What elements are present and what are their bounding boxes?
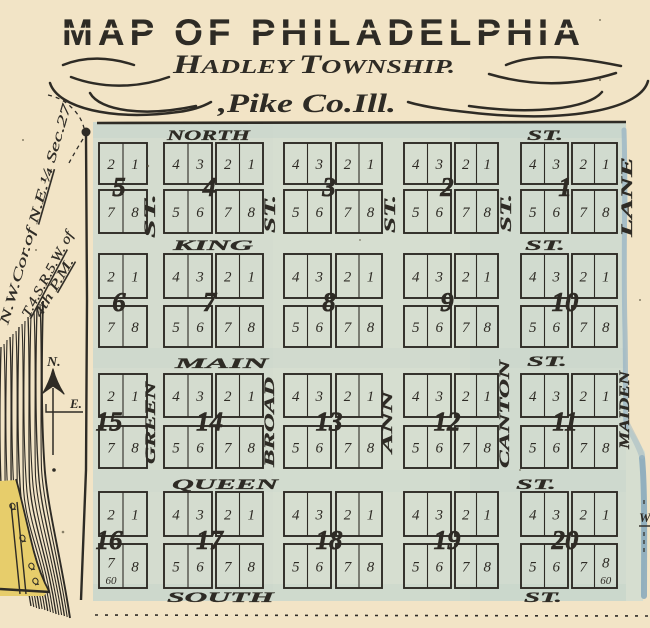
svg-text:MAIDEN: MAIDEN bbox=[617, 370, 633, 451]
svg-text:12: 12 bbox=[434, 407, 461, 437]
svg-text:ST.: ST. bbox=[527, 128, 563, 144]
svg-text:4: 4 bbox=[172, 270, 180, 286]
svg-text:ST.: ST. bbox=[524, 590, 562, 606]
svg-text:4: 4 bbox=[529, 270, 537, 286]
svg-text:5: 5 bbox=[172, 441, 180, 457]
svg-text:1: 1 bbox=[367, 157, 375, 173]
svg-text:8: 8 bbox=[247, 560, 255, 576]
svg-text:60: 60 bbox=[600, 575, 612, 587]
svg-text:6: 6 bbox=[435, 441, 443, 457]
svg-text:1: 1 bbox=[367, 389, 375, 405]
svg-text:5: 5 bbox=[172, 560, 180, 576]
svg-text:2: 2 bbox=[224, 157, 232, 173]
svg-text:19: 19 bbox=[434, 525, 462, 555]
svg-text:6: 6 bbox=[196, 205, 204, 221]
svg-text:8: 8 bbox=[602, 205, 610, 221]
svg-text:1: 1 bbox=[131, 508, 139, 524]
svg-text:13: 13 bbox=[316, 407, 343, 437]
svg-text:4: 4 bbox=[529, 157, 537, 173]
svg-text:3: 3 bbox=[195, 157, 204, 173]
svg-text:,Pike Co.Ill.: ,Pike Co.Ill. bbox=[217, 89, 396, 118]
svg-text:3: 3 bbox=[321, 172, 336, 202]
svg-text:6: 6 bbox=[315, 441, 323, 457]
svg-text:4: 4 bbox=[412, 270, 420, 286]
svg-text:2: 2 bbox=[462, 389, 470, 405]
svg-text:1: 1 bbox=[247, 157, 255, 173]
svg-text:ST.: ST. bbox=[382, 195, 399, 233]
svg-text:5: 5 bbox=[412, 441, 420, 457]
svg-text:MAIN: MAIN bbox=[173, 356, 271, 372]
svg-text:8: 8 bbox=[602, 320, 610, 336]
svg-text:2: 2 bbox=[344, 508, 352, 524]
svg-text:18: 18 bbox=[316, 525, 344, 555]
svg-text:15: 15 bbox=[96, 407, 123, 437]
svg-text:ST.: ST. bbox=[525, 238, 565, 254]
svg-text:3: 3 bbox=[551, 270, 560, 286]
svg-text:8: 8 bbox=[367, 320, 375, 336]
svg-text:1: 1 bbox=[558, 172, 572, 202]
svg-text:5: 5 bbox=[412, 205, 420, 221]
svg-text:1: 1 bbox=[131, 270, 139, 286]
svg-text:4: 4 bbox=[412, 508, 420, 524]
svg-text:GREEN: GREEN bbox=[143, 380, 159, 464]
svg-text:2: 2 bbox=[439, 172, 454, 202]
svg-text:4: 4 bbox=[202, 172, 217, 202]
svg-text:8: 8 bbox=[131, 320, 139, 336]
svg-text:3: 3 bbox=[551, 508, 560, 524]
svg-text:8: 8 bbox=[131, 441, 139, 457]
svg-text:1: 1 bbox=[247, 389, 255, 405]
svg-text:5: 5 bbox=[292, 320, 300, 336]
svg-text:20: 20 bbox=[551, 525, 580, 555]
svg-text:2: 2 bbox=[344, 270, 352, 286]
svg-text:4: 4 bbox=[172, 389, 180, 405]
svg-text:ST.: ST. bbox=[142, 194, 159, 238]
svg-text:1: 1 bbox=[602, 157, 610, 173]
svg-text:1: 1 bbox=[602, 270, 610, 286]
svg-text:2: 2 bbox=[579, 270, 587, 286]
svg-text:LANE: LANE bbox=[619, 157, 636, 239]
svg-text:CANTON: CANTON bbox=[497, 358, 513, 468]
svg-text:4: 4 bbox=[172, 157, 180, 173]
svg-text:6: 6 bbox=[552, 560, 560, 576]
svg-text:8: 8 bbox=[483, 205, 491, 221]
svg-text:4: 4 bbox=[292, 389, 300, 405]
svg-text:8: 8 bbox=[483, 320, 491, 336]
svg-text:6: 6 bbox=[196, 441, 204, 457]
svg-text:6: 6 bbox=[196, 560, 204, 576]
svg-text:17: 17 bbox=[196, 525, 225, 555]
svg-text:8: 8 bbox=[483, 441, 491, 457]
svg-text:8: 8 bbox=[247, 205, 255, 221]
svg-text:2: 2 bbox=[107, 389, 115, 405]
svg-text:5: 5 bbox=[529, 560, 537, 576]
svg-text:3: 3 bbox=[195, 389, 204, 405]
svg-text:3: 3 bbox=[314, 508, 323, 524]
svg-text:1: 1 bbox=[131, 157, 139, 173]
svg-text:1: 1 bbox=[367, 270, 375, 286]
svg-text:3: 3 bbox=[551, 389, 560, 405]
svg-text:6: 6 bbox=[552, 205, 560, 221]
svg-text:6: 6 bbox=[112, 287, 126, 317]
svg-text:6: 6 bbox=[196, 320, 204, 336]
svg-text:6: 6 bbox=[315, 320, 323, 336]
svg-text:1: 1 bbox=[367, 508, 375, 524]
svg-text:60: 60 bbox=[106, 575, 118, 587]
svg-text:2: 2 bbox=[344, 157, 352, 173]
svg-text:SOUTH: SOUTH bbox=[167, 590, 277, 606]
svg-text:8: 8 bbox=[131, 560, 139, 576]
svg-text:8: 8 bbox=[367, 205, 375, 221]
svg-text:1: 1 bbox=[483, 270, 491, 286]
svg-text:4: 4 bbox=[292, 157, 300, 173]
svg-text:ST.: ST. bbox=[516, 477, 556, 493]
svg-text:4: 4 bbox=[529, 508, 537, 524]
svg-text:6: 6 bbox=[435, 205, 443, 221]
svg-text:8: 8 bbox=[602, 556, 610, 572]
svg-text:ST.: ST. bbox=[498, 194, 515, 232]
svg-text:2: 2 bbox=[224, 389, 232, 405]
svg-text:6: 6 bbox=[552, 441, 560, 457]
svg-text:8: 8 bbox=[367, 441, 375, 457]
svg-text:3: 3 bbox=[314, 270, 323, 286]
svg-text:8: 8 bbox=[483, 560, 491, 576]
svg-text:5: 5 bbox=[112, 172, 126, 202]
svg-text:3: 3 bbox=[434, 508, 443, 524]
svg-text:11: 11 bbox=[552, 407, 578, 437]
svg-text:ST.: ST. bbox=[527, 354, 567, 370]
svg-text:3: 3 bbox=[551, 157, 560, 173]
svg-text:QUEEN: QUEEN bbox=[172, 477, 280, 493]
svg-text:5: 5 bbox=[172, 205, 180, 221]
svg-text:4: 4 bbox=[412, 157, 420, 173]
svg-text:W: W bbox=[639, 510, 650, 525]
svg-text:KING: KING bbox=[171, 238, 253, 254]
svg-text:2: 2 bbox=[579, 389, 587, 405]
svg-text:ST.: ST. bbox=[262, 195, 279, 233]
svg-text:4: 4 bbox=[172, 508, 180, 524]
svg-text:6: 6 bbox=[552, 320, 560, 336]
svg-text:3: 3 bbox=[434, 270, 443, 286]
svg-text:1: 1 bbox=[483, 389, 491, 405]
svg-text:1: 1 bbox=[483, 157, 491, 173]
svg-text:8: 8 bbox=[131, 205, 139, 221]
svg-text:6: 6 bbox=[315, 560, 323, 576]
svg-text:4: 4 bbox=[292, 270, 300, 286]
svg-text:3: 3 bbox=[195, 508, 204, 524]
svg-text:BROAD: BROAD bbox=[262, 377, 278, 469]
svg-text:9: 9 bbox=[440, 287, 454, 317]
svg-text:8: 8 bbox=[602, 441, 610, 457]
svg-text:1: 1 bbox=[247, 508, 255, 524]
svg-text:5: 5 bbox=[529, 441, 537, 457]
svg-text:3: 3 bbox=[434, 157, 443, 173]
svg-text:5: 5 bbox=[292, 560, 300, 576]
svg-text:4: 4 bbox=[529, 389, 537, 405]
svg-text:2: 2 bbox=[462, 270, 470, 286]
svg-text:5: 5 bbox=[412, 320, 420, 336]
svg-text:4: 4 bbox=[412, 389, 420, 405]
svg-text:5: 5 bbox=[292, 205, 300, 221]
svg-text:2: 2 bbox=[107, 508, 115, 524]
svg-text:3: 3 bbox=[314, 157, 323, 173]
svg-text:8: 8 bbox=[322, 287, 336, 317]
svg-text:2: 2 bbox=[344, 389, 352, 405]
svg-text:2: 2 bbox=[462, 157, 470, 173]
svg-text:3: 3 bbox=[314, 389, 323, 405]
svg-text:5: 5 bbox=[412, 560, 420, 576]
svg-text:8: 8 bbox=[247, 441, 255, 457]
svg-text:5: 5 bbox=[292, 441, 300, 457]
svg-text:14: 14 bbox=[196, 407, 223, 437]
svg-text:2: 2 bbox=[579, 157, 587, 173]
svg-text:NORTH: NORTH bbox=[165, 128, 252, 144]
svg-text:1: 1 bbox=[247, 270, 255, 286]
svg-text:2: 2 bbox=[107, 270, 115, 286]
svg-text:2: 2 bbox=[224, 270, 232, 286]
svg-text:2: 2 bbox=[579, 508, 587, 524]
svg-text:16: 16 bbox=[96, 525, 124, 555]
svg-text:4: 4 bbox=[292, 508, 300, 524]
svg-text:6: 6 bbox=[435, 560, 443, 576]
svg-text:2: 2 bbox=[462, 508, 470, 524]
svg-text:8: 8 bbox=[367, 560, 375, 576]
svg-text:2: 2 bbox=[224, 508, 232, 524]
svg-text:1: 1 bbox=[483, 508, 491, 524]
svg-text:3: 3 bbox=[434, 389, 443, 405]
svg-text:E.: E. bbox=[69, 396, 82, 411]
svg-text:ANN: ANN bbox=[380, 389, 396, 455]
svg-text:N.: N. bbox=[46, 355, 61, 370]
svg-text:5: 5 bbox=[529, 320, 537, 336]
svg-text:3: 3 bbox=[195, 270, 204, 286]
svg-text:8: 8 bbox=[247, 320, 255, 336]
svg-text:5: 5 bbox=[529, 205, 537, 221]
svg-text:7: 7 bbox=[203, 287, 218, 317]
svg-text:1: 1 bbox=[131, 389, 139, 405]
svg-text:6: 6 bbox=[435, 320, 443, 336]
svg-text:5: 5 bbox=[172, 320, 180, 336]
svg-text:6: 6 bbox=[315, 205, 323, 221]
svg-text:1: 1 bbox=[602, 389, 610, 405]
svg-text:1: 1 bbox=[602, 508, 610, 524]
svg-text:2: 2 bbox=[107, 157, 115, 173]
svg-text:10: 10 bbox=[552, 287, 580, 317]
